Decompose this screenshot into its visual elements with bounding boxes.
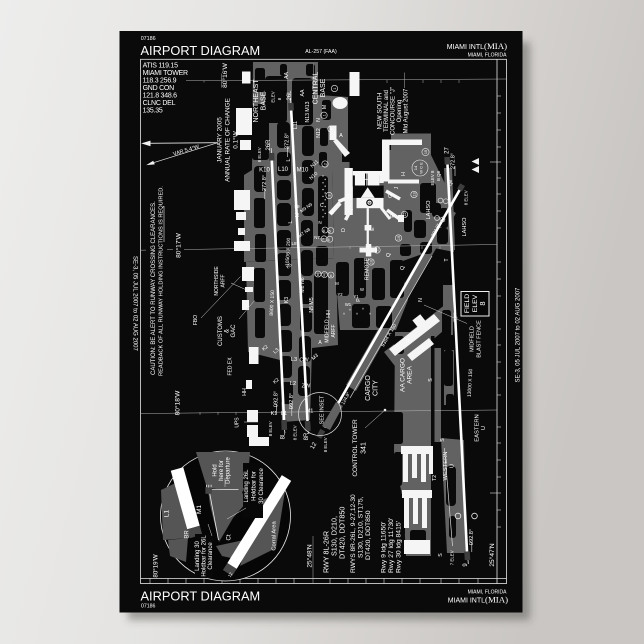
svg-text:272.8°: 272.8° [262,175,268,191]
svg-text:S: S [438,553,444,557]
svg-text:8L: 8L [281,432,287,439]
svg-text:K10: K10 [259,168,270,174]
svg-text:L8: L8 [291,241,297,246]
svg-text:ELEV: ELEV [450,550,455,561]
svg-text:80°17'W: 80°17'W [175,232,183,258]
svg-text:G: G [388,194,394,198]
svg-text:27: 27 [445,147,451,154]
svg-text:EASTERN: EASTERN [475,414,481,441]
svg-text:N: N [318,220,321,225]
svg-text:HH: HH [326,310,332,318]
svg-text:N12: N12 [316,128,322,138]
svg-text:1: 1 [322,114,326,116]
svg-text:26L: 26L [287,90,293,101]
svg-text:AA: AA [284,72,290,79]
svg-text:8: 8 [330,274,332,278]
svg-text:1: 1 [333,87,337,89]
svg-text:CW: CW [299,358,309,364]
svg-text:341: 341 [361,442,368,454]
svg-text:Q: Q [386,253,392,257]
svg-text:ELEV: ELEV [257,147,262,158]
svg-text:T2: T2 [432,475,438,481]
svg-text:8R: 8R [304,432,310,440]
svg-text:80°19'W: 80°19'W [153,554,160,577]
svg-text:118.3 256.9: 118.3 256.9 [143,77,177,84]
svg-text:TERMINAL and: TERMINAL and [384,90,390,132]
svg-text:Ct: Ct [227,534,233,540]
svg-text:272.8°: 272.8° [285,133,291,149]
svg-text:AIRPORT DIAGRAM: AIRPORT DIAGRAM [141,43,261,58]
svg-text:ELEV 8: ELEV 8 [430,170,435,185]
svg-text:5: 5 [329,229,331,233]
svg-text:N: N [316,118,322,122]
svg-text:CONTROL TOWER: CONTROL TOWER [352,419,359,477]
svg-text:W C E: W C E [419,162,424,174]
svg-text:15: 15 [424,150,428,154]
svg-text:U: U [450,464,456,468]
svg-text:CLNC DEL: CLNC DEL [143,100,176,107]
svg-text:M: M [322,105,328,109]
svg-text:D: D [341,228,347,232]
svg-text:80°16'W: 80°16'W [221,62,229,88]
svg-text:CUSTOMS: CUSTOMS [218,316,224,346]
svg-text:BASE: BASE [261,91,268,110]
svg-text:AIRPORT DIAGRAM: AIRPORT DIAGRAM [141,589,261,604]
svg-text:^: ^ [343,312,345,317]
svg-text:&: & [225,329,231,333]
svg-text:135.35: 135.35 [143,107,163,114]
svg-text:0.1°W: 0.1°W [232,130,240,148]
svg-text:SE-3, 05 JUL 2007 to 02 AUG 20: SE-3, 05 JUL 2007 to 02 AUG 2007 [516,287,522,383]
svg-text:Q: Q [400,266,406,270]
svg-text:Rwy 30 ldg 8415': Rwy 30 ldg 8415' [396,521,403,573]
svg-text:L: L [286,158,292,161]
svg-text:L: L [288,220,294,223]
svg-text:RWYS 8R-26L, 9-27,12-30: RWYS 8R-26L, 9-27,12-30 [350,494,357,573]
svg-text:^: ^ [362,307,364,312]
svg-text:AL-257 (FAA): AL-257 (FAA) [305,49,337,55]
svg-text:Rwy 9 ldg 11650': Rwy 9 ldg 11650' [381,522,388,573]
svg-text:11: 11 [375,248,379,252]
svg-text:M1: M1 [196,505,203,514]
svg-text:here for: here for [219,460,225,481]
svg-text:GAC: GAC [231,324,237,338]
svg-text:25°48'N: 25°48'N [306,544,314,568]
svg-text:4: 4 [329,128,333,130]
svg-text:^: ^ [369,312,371,317]
svg-text:ATIS 119.15: ATIS 119.15 [143,62,178,69]
svg-text:^: ^ [356,312,358,317]
svg-text:ELEV: ELEV [293,425,298,436]
svg-text:S: S [440,438,446,442]
svg-text:Hold: Hold [213,464,219,476]
svg-text:CENTRAL: CENTRAL [313,72,320,105]
svg-text:BLAST FENCE: BLAST FENCE [477,320,483,358]
svg-text:80°18'W: 80°18'W [174,390,182,416]
svg-text:8: 8 [317,273,319,277]
svg-text:N13 M13: N13 M13 [305,101,311,122]
svg-text:Departure: Departure [226,457,232,484]
svg-text:W: W [360,287,364,292]
svg-text:E: E [370,227,376,231]
svg-text:8: 8 [323,274,325,278]
svg-text:L9: L9 [294,204,300,209]
svg-text:NEW SOUTH: NEW SOUTH [378,93,384,130]
svg-text:26R: 26R [266,139,272,151]
svg-text:Holdbar for: Holdbar for [252,471,258,501]
svg-text:AREA: AREA [407,365,414,383]
svg-text:^: ^ [349,308,351,313]
svg-text:U: U [481,426,487,430]
svg-text:MIDFIELD: MIDFIELD [470,326,476,352]
svg-text:R: R [406,338,412,342]
svg-text:3: 3 [327,194,331,196]
svg-text:H: H [401,172,407,176]
svg-text:S130, D210, ST175,: S130, D210, ST175, [358,496,365,558]
svg-text:25°47'N: 25°47'N [488,543,496,567]
svg-text:GND CON: GND CON [143,85,175,92]
svg-text:M: M [295,213,301,217]
svg-text:LAHSO: LAHSO [462,217,468,237]
svg-text:D: D [347,194,353,198]
svg-text:092.8°: 092.8° [289,393,295,409]
svg-text:AA: AA [300,89,306,96]
svg-text:092.8°: 092.8° [469,529,475,545]
svg-text:WESTERN: WESTERN [443,452,449,481]
svg-text:C: C [320,203,324,209]
svg-text:FBO: FBO [193,315,199,325]
svg-text:Rwy 27 ldg 11730': Rwy 27 ldg 11730' [388,518,395,573]
svg-text:NORTHEAST: NORTHEAST [253,79,260,123]
svg-text:7: 7 [322,238,324,242]
svg-text:L1: L1 [281,411,287,417]
svg-text:CITY: CITY [373,380,380,396]
svg-text:M10: M10 [297,168,309,174]
svg-text:K1: K1 [271,411,278,417]
svg-text:30 Clearance: 30 Clearance [259,467,265,503]
svg-text:Y2: Y2 [337,292,343,297]
svg-text:FIELD: FIELD [464,294,471,313]
svg-text:CARGO: CARGO [365,375,372,401]
svg-text:HH: HH [242,388,248,396]
svg-text:MIDFIELD: MIDFIELD [325,319,331,343]
svg-text:ELEV: ELEV [268,421,273,432]
svg-text:F: F [390,214,396,217]
svg-text:BR: BR [185,530,191,539]
svg-text:Clearance: Clearance [208,542,214,570]
svg-text:DT420, DDT850: DT420, DDT850 [365,510,372,560]
svg-text:NORTHSIDE: NORTHSIDE [214,266,220,296]
svg-text:L11: L11 [293,121,299,129]
svg-text:AA CARGO: AA CARGO [400,358,407,392]
svg-text:E: E [330,210,336,214]
svg-text:Holdbar for 26L: Holdbar for 26L [202,535,208,577]
svg-text:ELEV: ELEV [271,91,276,102]
svg-text:MIAMI TOWER: MIAMI TOWER [143,70,188,77]
svg-text:ARFF: ARFF [221,274,227,287]
svg-text:N5 M5: N5 M5 [309,297,315,312]
svg-text:N: N [418,298,424,302]
svg-text:13: 13 [412,192,416,196]
svg-text:ARFF: ARFF [331,324,337,337]
svg-text:10: 10 [369,260,373,264]
svg-text:L1: L1 [164,510,171,518]
svg-text:L3: L3 [291,357,297,363]
svg-text:W1: W1 [345,302,352,307]
svg-text:19: 19 [397,236,401,240]
svg-text:J: J [394,186,400,189]
svg-text:ZW: ZW [302,384,311,390]
svg-text:Landing 30: Landing 30 [195,540,201,570]
svg-text:CONCOURSE "J": CONCOURSE "J" [391,87,397,135]
svg-text:6: 6 [328,238,330,242]
svg-text:FED EX: FED EX [228,357,234,376]
svg-text:MIAMI, FLORIDA: MIAMI, FLORIDA [468,53,508,59]
svg-text:M1: M1 [306,409,314,415]
svg-text:READBACK OF ALL RUNWAY HOLDING: READBACK OF ALL RUNWAY HOLDING INSTRUCTI… [158,186,164,376]
svg-text:12: 12 [403,212,407,216]
svg-text:07186: 07186 [141,604,156,610]
svg-text:6: 6 [323,229,325,233]
svg-text:SE-3, 05 JUL 2007 to 02 AUG 20: SE-3, 05 JUL 2007 to 02 AUG 2007 [132,256,138,352]
svg-text:LAHSO: LAHSO [426,200,432,220]
svg-text:ELEV: ELEV [323,437,328,448]
svg-text:092.8°: 092.8° [274,391,280,407]
svg-text:B Q8: B Q8 [436,170,441,181]
svg-text:14: 14 [413,165,418,170]
svg-text:121.8 348.6: 121.8 348.6 [143,92,178,99]
svg-text:BASE: BASE [320,78,327,97]
svg-text:ELEV: ELEV [464,190,469,201]
svg-text:M6 N6: M6 N6 [300,277,306,292]
svg-text:A: A [339,133,343,139]
svg-text:2: 2 [323,163,327,165]
svg-text:S: S [428,378,434,382]
svg-text:L2: L2 [290,381,296,387]
svg-text:N7: N7 [314,235,320,240]
svg-text:07186: 07186 [141,36,156,42]
svg-text:JANUARY 2005: JANUARY 2005 [217,117,224,163]
svg-text:272.8°: 272.8° [451,153,457,169]
svg-text:L10: L10 [278,167,289,173]
svg-text:Q8: Q8 [448,180,453,186]
svg-text:K3: K3 [284,297,290,303]
svg-text:8: 8 [478,301,487,305]
svg-text:CAUTION: BE ALERT TO RUNWAY CR: CAUTION: BE ALERT TO RUNWAY CROSSING CLE… [151,201,157,375]
svg-text:SEE INSET: SEE INSET [320,395,326,424]
svg-text:UPS: UPS [235,417,241,428]
svg-text:M: M [335,281,339,286]
svg-text:Corral Area: Corral Area [272,521,278,551]
svg-text:ANNUAL RATE OF CHANGE: ANNUAL RATE OF CHANGE [225,98,232,182]
svg-text:Mid August 2007: Mid August 2007 [404,88,410,133]
svg-text:DT420, DDT850: DT420, DDT850 [338,507,347,559]
svg-text:Landing 26L: Landing 26L [244,469,250,503]
svg-text:Y1: Y1 [353,294,359,299]
svg-text:Opening: Opening [397,100,403,123]
